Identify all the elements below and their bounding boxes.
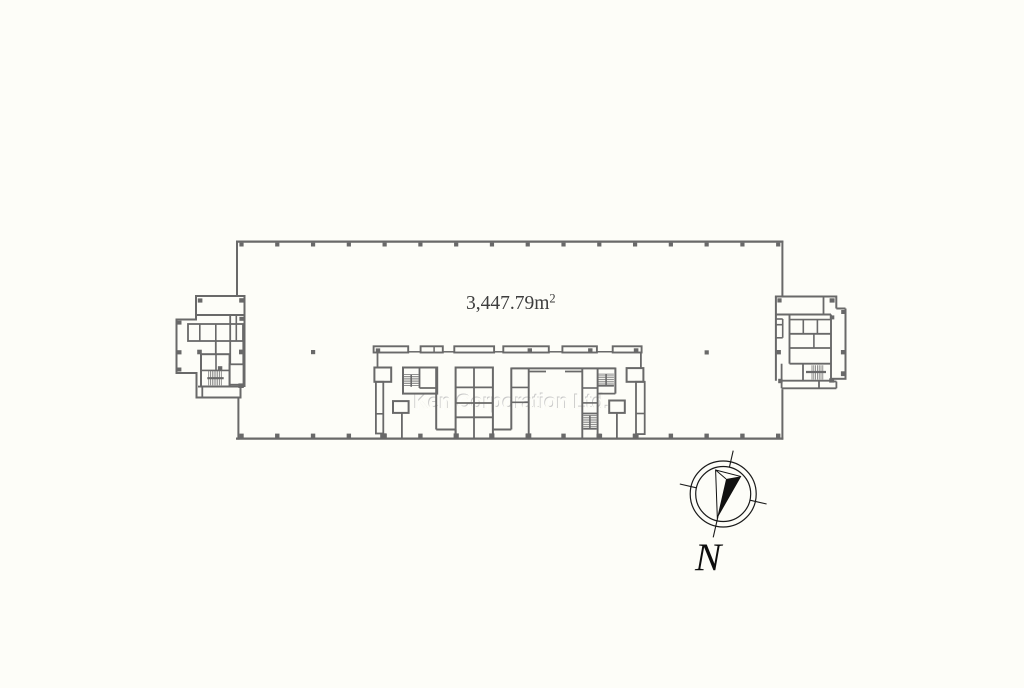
svg-text:3,447.79m2: 3,447.79m2: [466, 292, 556, 315]
svg-text:N: N: [694, 535, 724, 579]
